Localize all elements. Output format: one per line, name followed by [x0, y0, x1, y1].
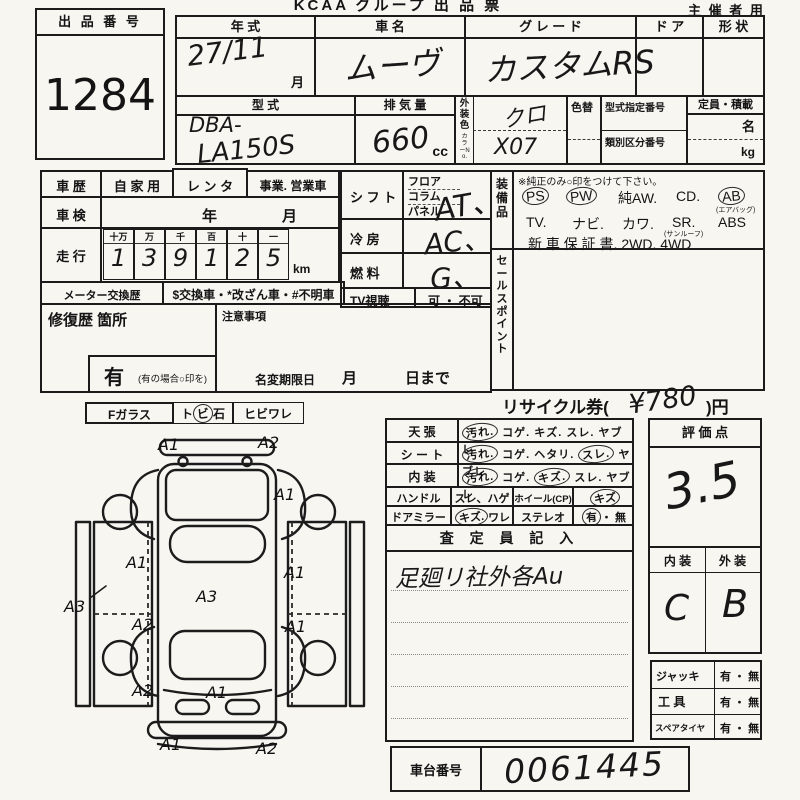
- fender-rear-right: [278, 470, 305, 539]
- rating-score: 3.5: [659, 451, 745, 522]
- damage-mark: A1: [125, 553, 147, 572]
- repair-note: (有の場合○印を): [138, 371, 207, 385]
- model-cell: 型 式 DBA- LA150S: [175, 95, 356, 165]
- color-no-label: カラーNo.: [459, 134, 470, 162]
- headlight-right: [226, 700, 259, 714]
- seat-options-cell: 汚れ. コゲ. ヘタリ. スレ. ヤブレ: [457, 441, 634, 465]
- mileage-digit-box: 百 1: [196, 229, 227, 280]
- rating-label: 評 価 点: [650, 420, 760, 448]
- chassis-box: 車台番号 0061445: [390, 746, 690, 792]
- capacity-cell: 定員・積載 名 kg: [686, 95, 765, 165]
- windshield: [170, 631, 265, 679]
- equipment-note: ※純正のみ○印をつけて下さい。: [518, 173, 662, 188]
- headliner-options-cell: 汚れ. コゲ. キズ. スレ. ヤブレ: [457, 418, 634, 443]
- rear-window: [170, 526, 265, 562]
- mileage-digit-2: 9: [166, 244, 195, 272]
- damage-mark: A2: [131, 615, 153, 634]
- displacement-label: 排 気 量: [356, 97, 454, 116]
- meter-options: $交換車・*改ざん車・#不明車: [164, 286, 343, 303]
- mileage-digit-box: 一 5: [258, 229, 289, 280]
- recycle-label: リサイクル券(: [502, 393, 609, 418]
- damage-mark: A1: [273, 485, 295, 504]
- chassis-value: 0061445: [503, 744, 666, 791]
- type-number-cell: 型式指定番号 類別区分番号: [600, 95, 688, 165]
- stereo-label-cell: ステレオ: [512, 505, 574, 526]
- mileage-unit: km: [293, 262, 310, 276]
- equipment-tv: TV.: [526, 214, 547, 230]
- tv-cell: TV視聴 可 ・ 不可: [340, 287, 492, 308]
- history-private-cell: 自 家 用: [100, 170, 174, 198]
- seat-label: シ ー ト: [387, 446, 457, 463]
- damage-mark: A1: [159, 735, 181, 754]
- damage-mark: A3: [63, 597, 85, 616]
- displacement-value: 660: [370, 120, 431, 161]
- mileage-label-cell: 走 行: [40, 227, 102, 283]
- month-suffix: 月: [291, 72, 304, 91]
- inspector-note: 足廻リ社外各Au: [395, 557, 564, 594]
- tools-label: 工 具: [658, 693, 685, 710]
- repair-has: 有: [104, 361, 124, 390]
- mileage-digit-0: 1: [104, 244, 133, 272]
- interior-grade: C: [664, 588, 689, 629]
- jack-label: ジャッキ: [656, 668, 699, 684]
- fglass-chip-cell: トビ石: [172, 402, 234, 424]
- stereo-no: ・ 無: [601, 512, 626, 524]
- mileage-digit-3: 1: [197, 244, 226, 272]
- mark-leader-line: [90, 586, 106, 598]
- accessories-box: ジャッキ 有 ・ 無 工 具 有 ・ 無 スペアタイヤ 有 ・ 無: [650, 660, 762, 740]
- rename-deadline-label: 名変期限日: [255, 371, 315, 388]
- fglass-label-cell: Fガラス: [85, 402, 174, 424]
- lot-number-box: 出 品 番 号 1284: [35, 8, 165, 160]
- chip-part-circled: ビ: [192, 403, 214, 424]
- ac-label: 冷 房: [350, 229, 380, 248]
- spare-tire-label: スペアタイヤ: [655, 722, 705, 734]
- displacement-unit: cc: [432, 143, 448, 159]
- handle-options-cell: スレ、ハゲ: [450, 486, 514, 507]
- capacity-kg: kg: [741, 145, 755, 159]
- wheel-label-cell: ホイール(CP): [512, 486, 574, 507]
- exterior-grade: B: [722, 582, 748, 626]
- damage-mark: A3: [195, 587, 217, 606]
- year-cell: 年 式 27/11 月: [175, 15, 316, 97]
- chip-part-2: 石: [213, 407, 225, 421]
- equipment-pw: PW: [565, 186, 597, 207]
- inspection-month: 月: [282, 205, 297, 226]
- damage-mark: A2: [257, 433, 279, 452]
- equipment-ps: PS: [521, 186, 549, 206]
- equipment-content-cell: ※純正のみ○印をつけて下さい。 PS PW 純AW. CD. AB (エアバッグ…: [512, 170, 765, 250]
- rating-box: 評 価 点 3.5 内 装 外 装 C B: [648, 418, 762, 654]
- rename-day: 日まで: [405, 367, 450, 388]
- shift-label: シ フ ト: [350, 187, 396, 206]
- capacity-label: 定員・積載: [688, 97, 763, 115]
- mileage-col-100: 百: [197, 230, 226, 244]
- mileage-digit-4: 2: [228, 244, 257, 272]
- equipment-cd: CD.: [676, 188, 700, 204]
- classification-label: 類別区分番号: [605, 134, 665, 149]
- lot-number-label: 出 品 番 号: [37, 10, 163, 36]
- mileage-col-10: 十: [228, 230, 257, 244]
- headliner-label-cell: 天 張: [385, 418, 459, 443]
- rename-month: 月: [342, 367, 357, 388]
- damage-mark: A2: [131, 681, 153, 700]
- tv-options: 可 ・ 不可: [428, 292, 483, 309]
- recycle-suffix: )円: [706, 393, 729, 418]
- history-label: 車 歴: [42, 176, 100, 195]
- history-business: 事業. 営業車: [248, 177, 338, 194]
- damage-mark: A2: [255, 739, 277, 758]
- interior-trim-label: 内 装: [387, 468, 457, 485]
- ac-cell: 冷 房 AC、: [340, 218, 492, 254]
- color-cell: 外装色 カラーNo. クロ X07: [454, 95, 568, 165]
- shift-cell: シ フ ト フロア コラム パネル AT、: [340, 170, 492, 220]
- auction-sheet: KCAA グループ 出 品 票 主 催 者 用 出 品 番 号 1284 年 式…: [0, 0, 800, 800]
- mileage-digit-box: 千 9: [165, 229, 196, 280]
- fglass-crack: ヒビワレ: [233, 405, 303, 422]
- tools-options: 有 ・ 無: [720, 694, 759, 710]
- grade-cell: グ レ ー ド カスタムRS: [464, 15, 637, 97]
- right-sill: [350, 522, 364, 706]
- shape-label: 形 状: [704, 17, 763, 39]
- caution-cell: 注意事項 名変期限日 月 日まで: [215, 303, 492, 393]
- wheel-value-cell: キズ: [572, 486, 634, 507]
- inspection-value-cell: 年 月: [100, 196, 340, 229]
- chassis-label: 車台番号: [392, 760, 480, 779]
- mileage-col-10k: 万: [135, 230, 164, 244]
- mileage-col-1: 一: [259, 230, 288, 244]
- door-label: ド ア: [637, 17, 702, 39]
- mileage-col-1k: 千: [166, 230, 195, 244]
- seat-burn: コゲ.: [502, 449, 530, 461]
- rear-hatch: [166, 470, 268, 520]
- caution-label: 注意事項: [222, 308, 266, 324]
- exterior-color-label: 外装色: [458, 99, 471, 132]
- color-change-label: 色替: [571, 99, 593, 115]
- inspection-year: 年: [202, 205, 217, 226]
- door-cell: ド ア: [635, 15, 704, 97]
- repair-label: 修復歴 箇所: [48, 309, 127, 330]
- seat-label-cell: シ ー ト: [385, 441, 459, 465]
- color-change-cell: 色替: [566, 95, 602, 165]
- car-name-cell: 車 名 ムーヴ: [314, 15, 466, 97]
- equipment-leather: カワ.: [622, 214, 654, 234]
- damage-mark: A1: [205, 683, 227, 702]
- tv-label: TV視聴: [350, 292, 389, 309]
- damage-mark: A1: [284, 617, 306, 636]
- stereo-label: ステレオ: [514, 509, 572, 525]
- stereo-value-cell: 有・ 無: [572, 505, 634, 526]
- inspector-box: 査 定 員 記 入 足廻リ社外各Au: [385, 524, 634, 742]
- interior-grade-label: 内 装: [650, 552, 705, 569]
- history-label-cell: 車 歴: [40, 170, 102, 198]
- interior-burn: コゲ.: [502, 472, 530, 484]
- interior-dirt: 汚れ.: [461, 466, 498, 487]
- spare-tire-options: 有 ・ 無: [720, 720, 759, 736]
- wheel-label: ホイール(CP): [514, 491, 572, 505]
- mileage-digit-1: 3: [135, 244, 164, 272]
- mileage-digit-box: 万 3: [134, 229, 165, 280]
- equipment-ab: AB: [717, 186, 745, 206]
- seat-dirt: 汚れ.: [461, 443, 498, 464]
- model-value-1: DBA-: [189, 113, 242, 137]
- inspection-label-cell: 車 検: [40, 196, 102, 229]
- displacement-cell: 排 気 量 660 cc: [354, 95, 456, 165]
- history-business-cell: 事業. 営業車: [246, 170, 340, 198]
- fuel-cell: 燃 料 G、: [340, 252, 492, 289]
- headliner-label: 天 張: [387, 423, 457, 440]
- headliner-dirt: 汚れ.: [461, 421, 498, 442]
- mileage-digit-box: 十万 1: [103, 229, 134, 280]
- car-name-label: 車 名: [316, 17, 464, 39]
- car-name-value: ムーヴ: [343, 38, 442, 91]
- equipment-abs: ABS: [718, 214, 746, 230]
- color-value: クロ: [500, 95, 549, 134]
- damage-mark: A1: [283, 563, 305, 582]
- mirror-label: ドアミラー: [387, 509, 450, 525]
- repair-history-cell: 修復歴 箇所 有 (有の場合○印を): [40, 303, 217, 393]
- handle-label-cell: ハンドル: [385, 486, 452, 507]
- color-no-value: X07: [494, 135, 537, 160]
- sales-point-label: セールスポイント: [496, 255, 509, 356]
- exterior-grade-label: 外 装: [705, 552, 760, 569]
- handle-label: ハンドル: [387, 490, 450, 506]
- capacity-persons: 名: [742, 116, 755, 135]
- mirror-options-cell: キズ.ワレ: [450, 505, 514, 526]
- grade-label: グ レ ー ド: [466, 17, 635, 39]
- interior-options-cell: 汚れ. コゲ. キズ. スレ. ヤブレ: [457, 463, 634, 488]
- meter-label: メーター交換歴: [42, 287, 162, 303]
- mileage-digit-5: 5: [259, 244, 288, 272]
- inspector-header: 査 定 員 記 入: [387, 526, 632, 552]
- equipment-label: 装備品: [495, 178, 509, 219]
- mileage-label: 走 行: [42, 246, 100, 265]
- jack-options: 有 ・ 無: [720, 668, 759, 684]
- seat-wear: スレ.: [578, 443, 615, 464]
- meter-options-cell: $交換車・*改ざん車・#不明車: [162, 281, 345, 305]
- interior-label-cell: 内 装: [385, 463, 459, 488]
- interior-scratch: キズ.: [534, 466, 571, 487]
- fuel-label: 燃 料: [350, 263, 380, 282]
- shape-cell: 形 状: [702, 15, 765, 97]
- equipment-aw: 純AW.: [618, 188, 657, 208]
- mileage-col-100k: 十万: [104, 230, 133, 244]
- mirror-label-cell: ドアミラー: [385, 505, 452, 526]
- headliner-burn: コゲ.: [502, 427, 530, 439]
- interior-wear: スレ.: [574, 472, 602, 484]
- history-private: 自 家 用: [102, 176, 172, 195]
- equipment-navi: ナビ.: [572, 214, 604, 234]
- mileage-digit-box: 十 2: [227, 229, 258, 280]
- meter-label-cell: メーター交換歴: [40, 281, 164, 305]
- fglass-label: Fガラス: [87, 406, 172, 423]
- sales-point-content: [512, 248, 765, 391]
- lot-number-value: 1284: [37, 70, 163, 121]
- equipment-sr: SR.: [672, 214, 695, 230]
- headliner-scratch: キズ.: [534, 427, 562, 439]
- history-rental-cell: レ ン タ: [172, 168, 248, 198]
- type-designation-label: 型式指定番号: [605, 99, 665, 114]
- damage-mark: A1: [157, 435, 179, 454]
- fglass-crack-cell: ヒビワレ: [232, 402, 304, 424]
- mirror-crack: ワレ: [488, 512, 510, 524]
- sheet-title: KCAA グループ 出 品 票: [228, 0, 568, 15]
- chip-part-1: ト: [181, 407, 193, 421]
- grade-value: カスタムRS: [483, 37, 656, 92]
- seat-sag: ヘタリ.: [534, 449, 574, 461]
- sales-point-label-cell: セールスポイント: [490, 248, 514, 391]
- equipment-label-cell: 装備品: [490, 170, 514, 250]
- inspection-label: 車 検: [42, 205, 100, 224]
- headliner-wear: スレ.: [566, 427, 594, 439]
- history-rental: レ ン タ: [174, 176, 246, 195]
- car-damage-diagram: A1 A2 A1 A1 A3 A1 A3 A2 A1 A2 A1 A1 A2: [60, 428, 380, 798]
- headlight-left: [176, 700, 209, 714]
- handle-options: スレ、ハゲ: [452, 490, 512, 506]
